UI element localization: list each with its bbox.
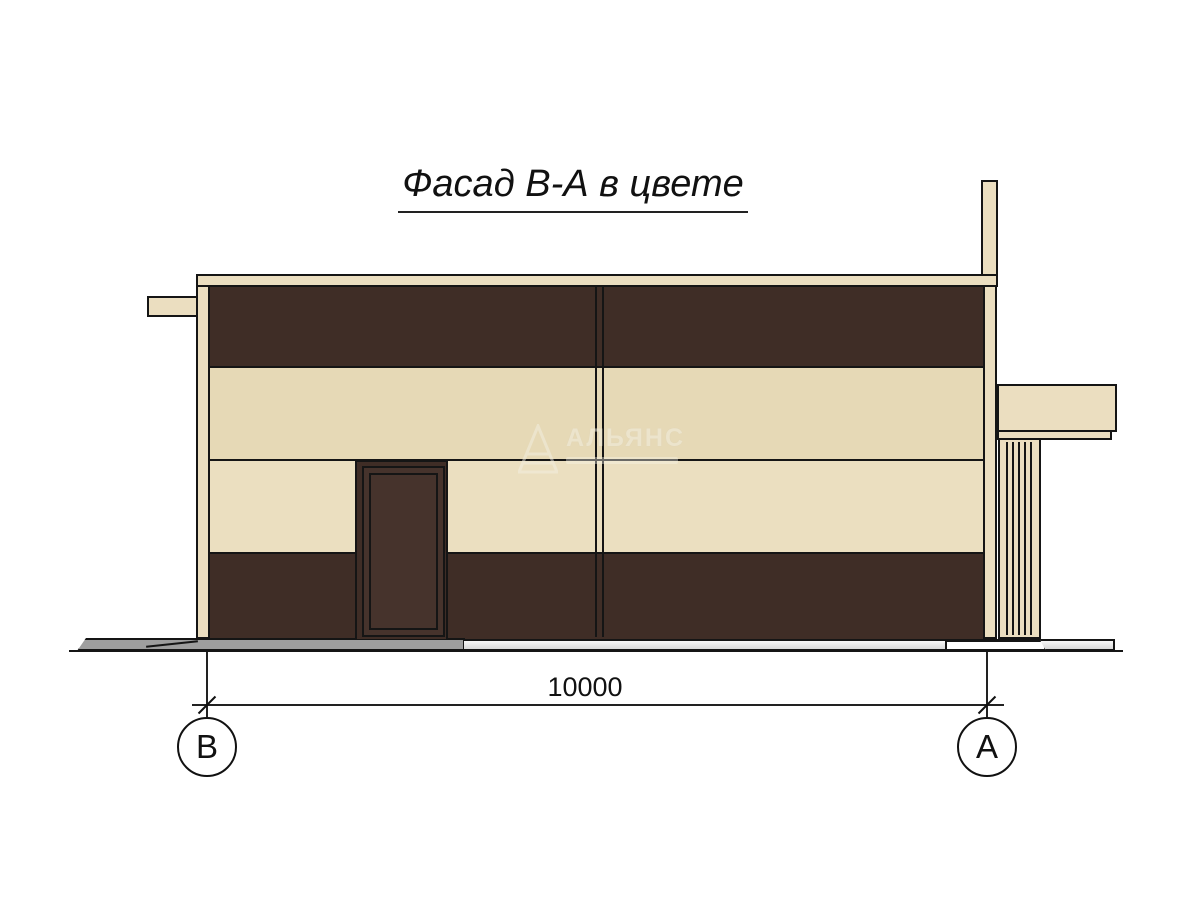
- dimension-line: [192, 704, 1004, 706]
- side-canopy-slab: [997, 384, 1117, 432]
- panel-seam-line: [595, 287, 597, 637]
- side-column-cluster: [998, 438, 1041, 639]
- entrance-door: [355, 460, 448, 639]
- column-line: [1006, 442, 1008, 635]
- drawing-title: Фасад В-А в цвете: [398, 163, 748, 213]
- column-line: [1018, 442, 1020, 635]
- axis-marker-a: А: [957, 717, 1017, 777]
- column-line: [1012, 442, 1014, 635]
- column-line: [1030, 442, 1032, 635]
- facade-wall: [196, 285, 997, 639]
- wall-corner-left: [198, 287, 210, 637]
- left-wall-ledge: [147, 296, 198, 317]
- parapet-strip: [196, 274, 998, 287]
- column-line: [1024, 442, 1026, 635]
- roof-pole: [981, 180, 998, 276]
- axis-label-b: В: [196, 728, 218, 766]
- dimension-value: 10000: [525, 672, 645, 703]
- ground-line: [69, 650, 1123, 652]
- axis-marker-b: В: [177, 717, 237, 777]
- door-frame: [362, 466, 445, 637]
- side-canopy-fascia: [997, 430, 1112, 440]
- wall-corner-right: [983, 287, 995, 637]
- facade-drawing-canvas: Фасад В-А в цвете 10000: [0, 0, 1200, 900]
- axis-label-a: А: [976, 728, 998, 766]
- door-panel: [369, 473, 438, 630]
- panel-seam-line: [602, 287, 604, 637]
